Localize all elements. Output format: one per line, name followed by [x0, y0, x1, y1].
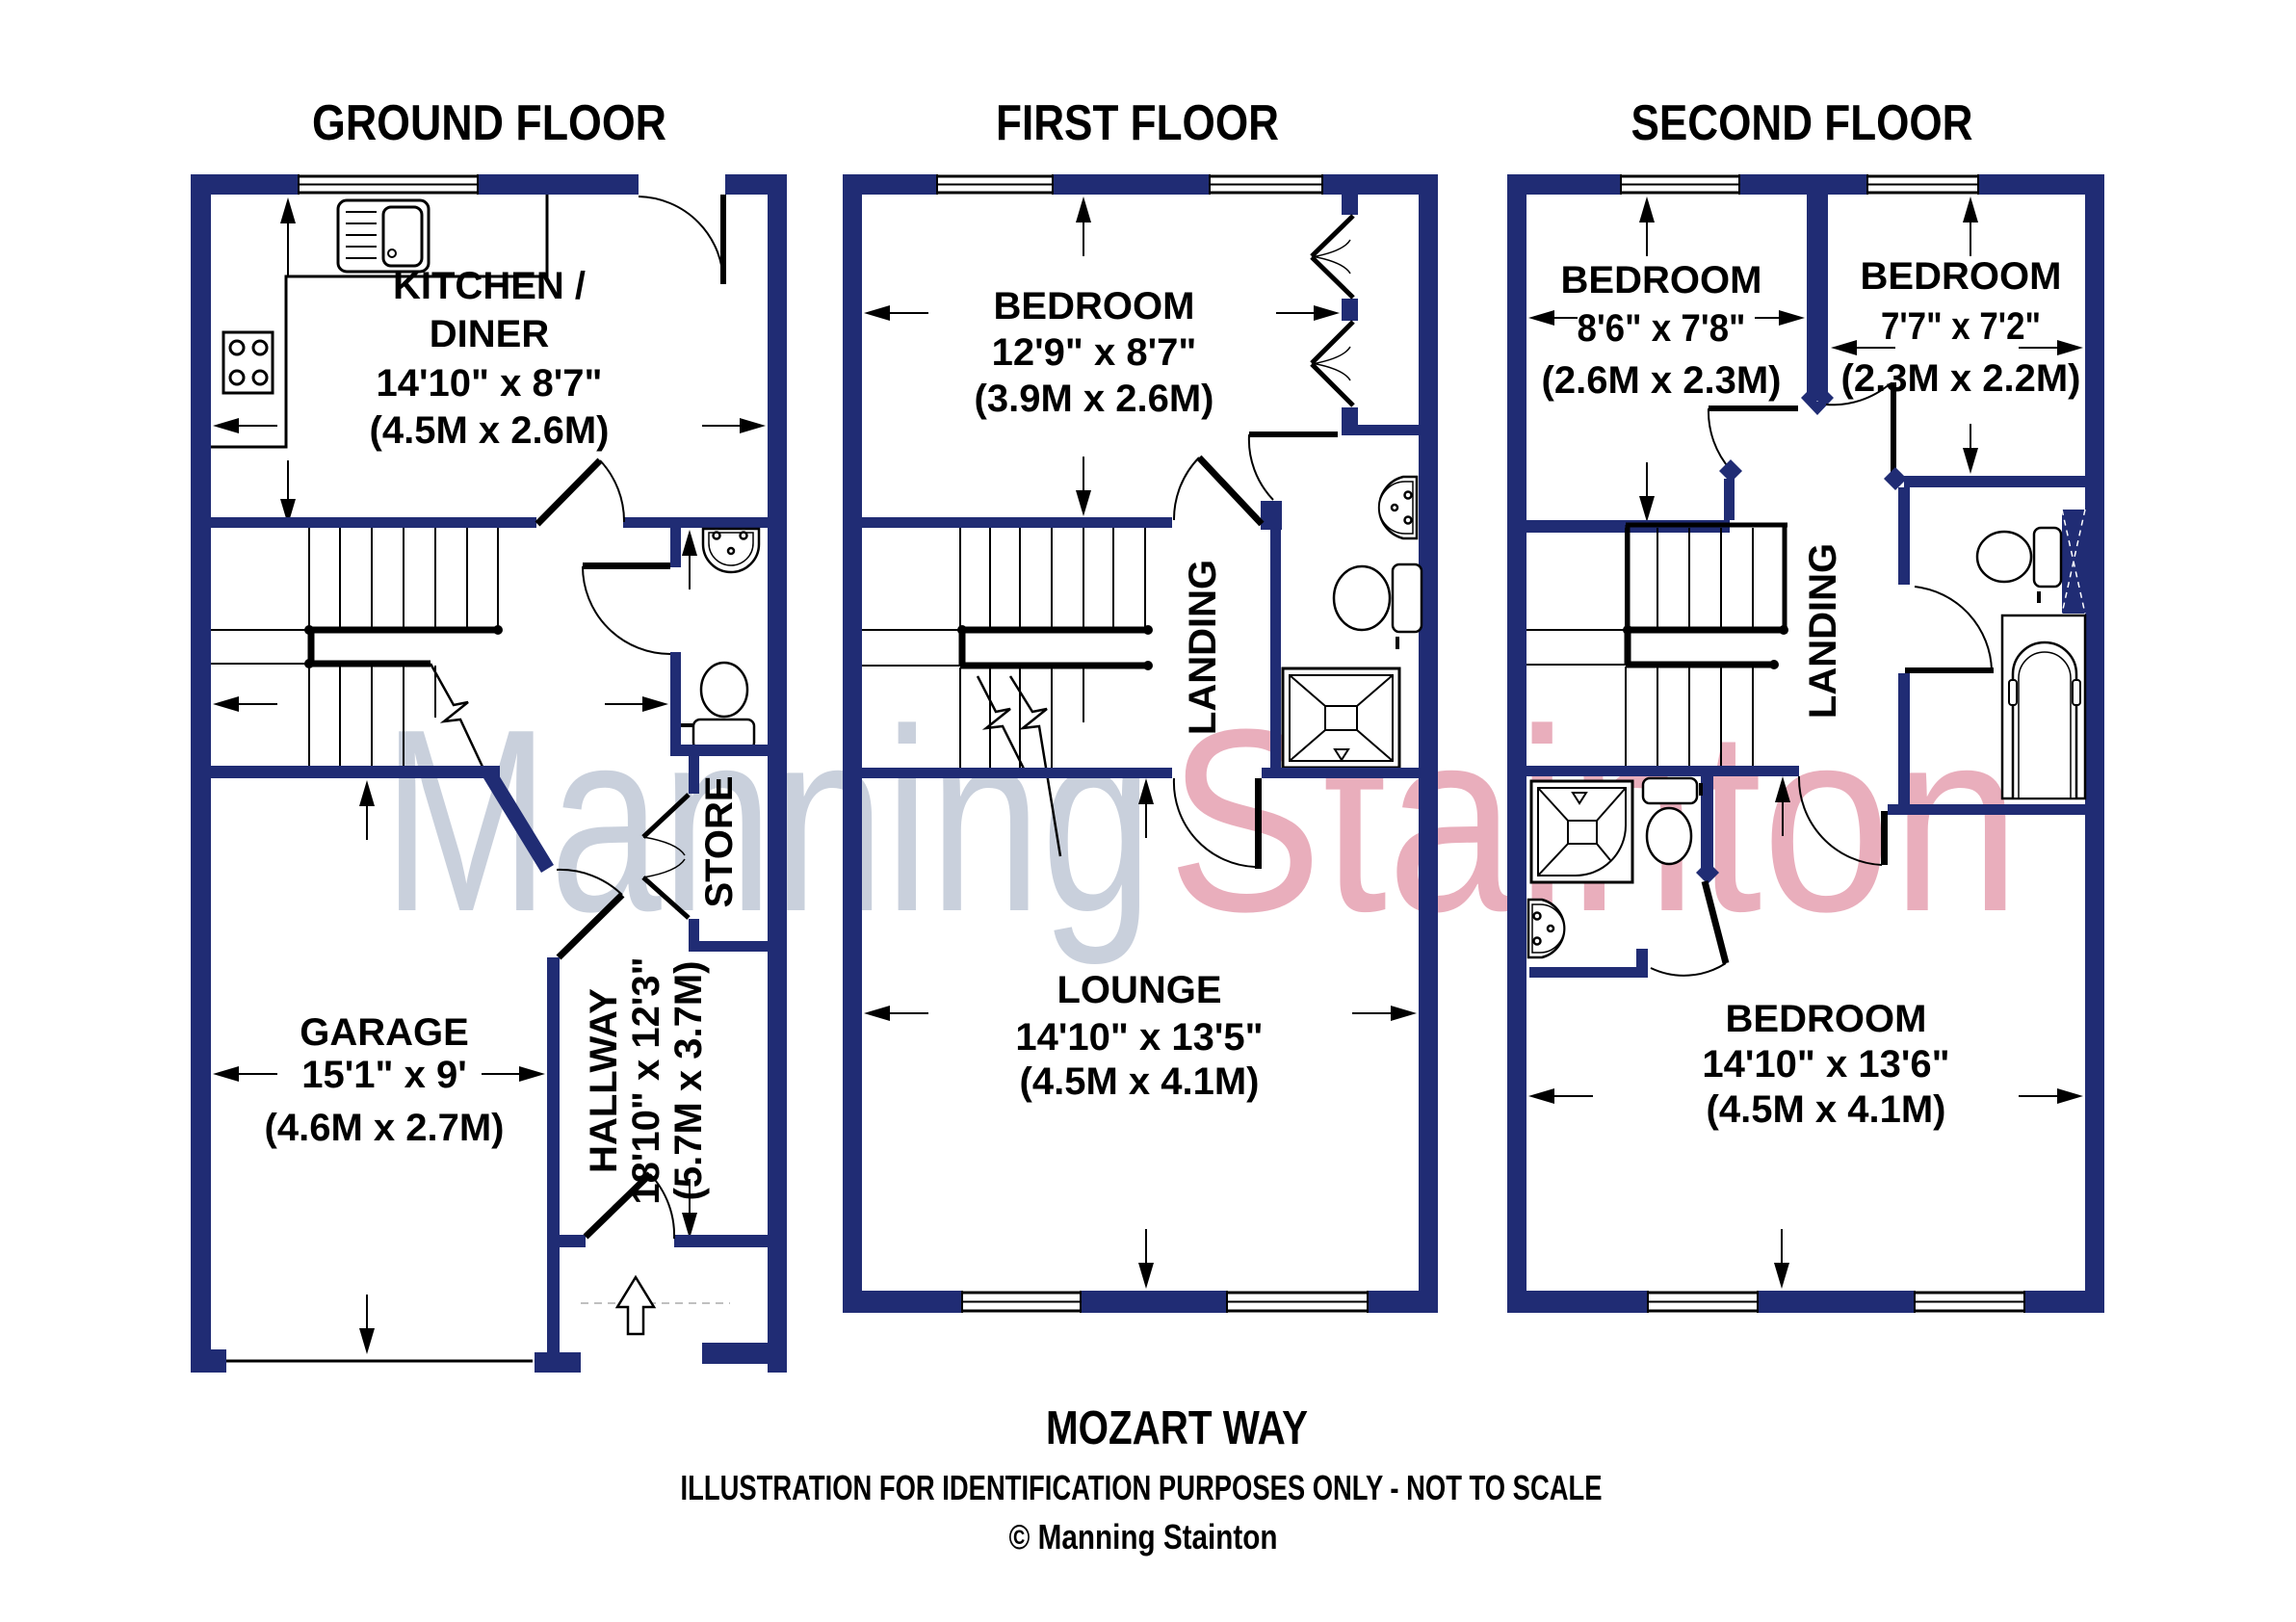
svg-text:© Manning Stainton: © Manning Stainton: [1009, 1517, 1278, 1557]
svg-text:GARAGE: GARAGE: [300, 1011, 469, 1054]
svg-text:ILLUSTRATION FOR IDENTIFICATIO: ILLUSTRATION FOR IDENTIFICATION PURPOSES…: [681, 1468, 1603, 1507]
svg-text:(3.9M x 2.6M): (3.9M x 2.6M): [975, 378, 1214, 420]
svg-text:GROUND FLOOR: GROUND FLOOR: [312, 95, 666, 151]
svg-text:(4.6M x 2.7M): (4.6M x 2.7M): [265, 1107, 505, 1149]
svg-text:7'7" x 7'2": 7'7" x 7'2": [1881, 305, 2041, 348]
svg-text:FIRST FLOOR: FIRST FLOOR: [996, 95, 1279, 151]
svg-text:HALLWAY: HALLWAY: [583, 988, 625, 1173]
svg-text:(5.7M x 3.7M): (5.7M x 3.7M): [667, 961, 710, 1201]
svg-text:(4.5M x 4.1M): (4.5M x 4.1M): [1707, 1088, 1946, 1131]
svg-text:(4.5M x 4.1M): (4.5M x 4.1M): [1020, 1060, 1260, 1103]
svg-text:BEDROOM: BEDROOM: [1861, 255, 2062, 298]
svg-text:8'6" x 7'8": 8'6" x 7'8": [1578, 307, 1746, 350]
svg-text:MOZART WAY: MOZART WAY: [1046, 1402, 1308, 1454]
svg-text:DINER: DINER: [430, 313, 550, 355]
svg-text:LOUNGE: LOUNGE: [1057, 969, 1221, 1011]
svg-text:14'10" x 8'7": 14'10" x 8'7": [377, 362, 603, 405]
svg-text:LANDING: LANDING: [1182, 560, 1224, 735]
svg-text:(2.6M x 2.3M): (2.6M x 2.3M): [1542, 359, 1782, 402]
svg-text:15'1" x 9': 15'1" x 9': [301, 1054, 466, 1096]
svg-text:BEDROOM: BEDROOM: [1561, 259, 1762, 301]
svg-text:18'10" x 12'3": 18'10" x 12'3": [625, 956, 667, 1204]
svg-text:LANDING: LANDING: [1802, 543, 1844, 719]
svg-text:14'10" x 13'6": 14'10" x 13'6": [1702, 1043, 1949, 1086]
svg-text:SECOND FLOOR: SECOND FLOOR: [1631, 95, 1973, 151]
svg-text:12'9" x 8'7": 12'9" x 8'7": [992, 331, 1197, 374]
svg-text:KITCHEN /: KITCHEN /: [393, 265, 586, 307]
svg-text:BEDROOM: BEDROOM: [994, 285, 1195, 327]
svg-text:BEDROOM: BEDROOM: [1726, 998, 1927, 1040]
svg-text:STORE: STORE: [698, 775, 741, 907]
svg-text:14'10" x 13'5": 14'10" x 13'5": [1015, 1016, 1263, 1059]
svg-text:(4.5M x 2.6M): (4.5M x 2.6M): [370, 409, 610, 452]
